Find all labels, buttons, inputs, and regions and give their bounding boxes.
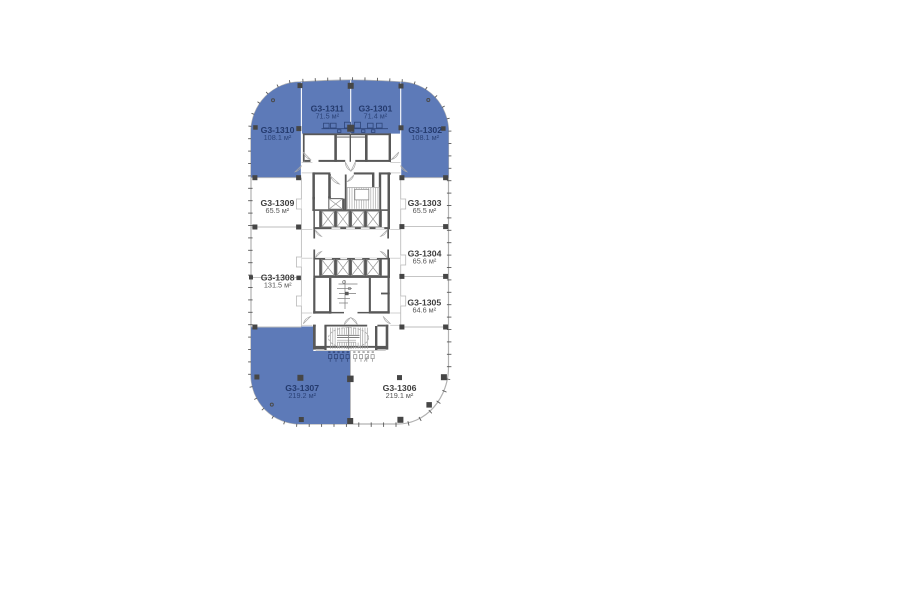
svg-text:64.6 м²: 64.6 м² bbox=[412, 306, 436, 315]
svg-text:131.5 м²: 131.5 м² bbox=[264, 280, 292, 289]
svg-text:108.1 м²: 108.1 м² bbox=[411, 133, 439, 142]
svg-text:65.5 м²: 65.5 м² bbox=[413, 206, 437, 215]
svg-text:108.1 м²: 108.1 м² bbox=[264, 133, 292, 142]
svg-text:71.4 м²: 71.4 м² bbox=[364, 112, 388, 121]
svg-text:65.6 м²: 65.6 м² bbox=[413, 256, 437, 265]
svg-text:71.5 м²: 71.5 м² bbox=[315, 112, 339, 121]
svg-text:65.5 м²: 65.5 м² bbox=[266, 206, 290, 215]
svg-text:219.2 м²: 219.2 м² bbox=[288, 391, 316, 400]
svg-text:219.1 м²: 219.1 м² bbox=[386, 391, 414, 400]
